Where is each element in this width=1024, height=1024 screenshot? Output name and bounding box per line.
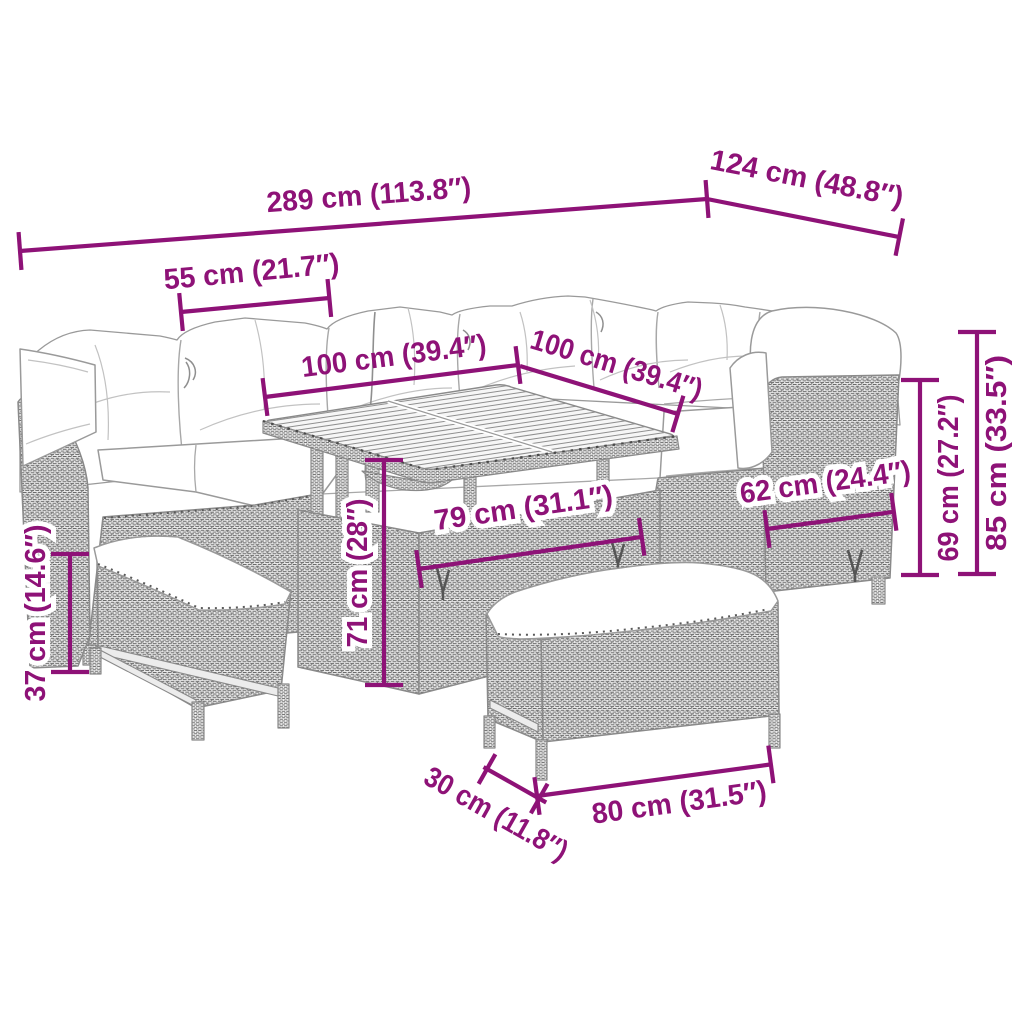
svg-text:71 cm (28″): 71 cm (28″): [342, 499, 374, 648]
svg-text:30 cm (11.8″): 30 cm (11.8″): [418, 761, 573, 868]
svg-text:289 cm (113.8″): 289 cm (113.8″): [265, 172, 472, 219]
svg-text:85 cm (33.5″): 85 cm (33.5″): [981, 355, 1013, 551]
svg-text:69 cm (27.2″): 69 cm (27.2″): [933, 395, 965, 562]
svg-text:55 cm (21.7″): 55 cm (21.7″): [162, 248, 340, 296]
svg-text:37 cm (14.6″): 37 cm (14.6″): [20, 525, 52, 702]
